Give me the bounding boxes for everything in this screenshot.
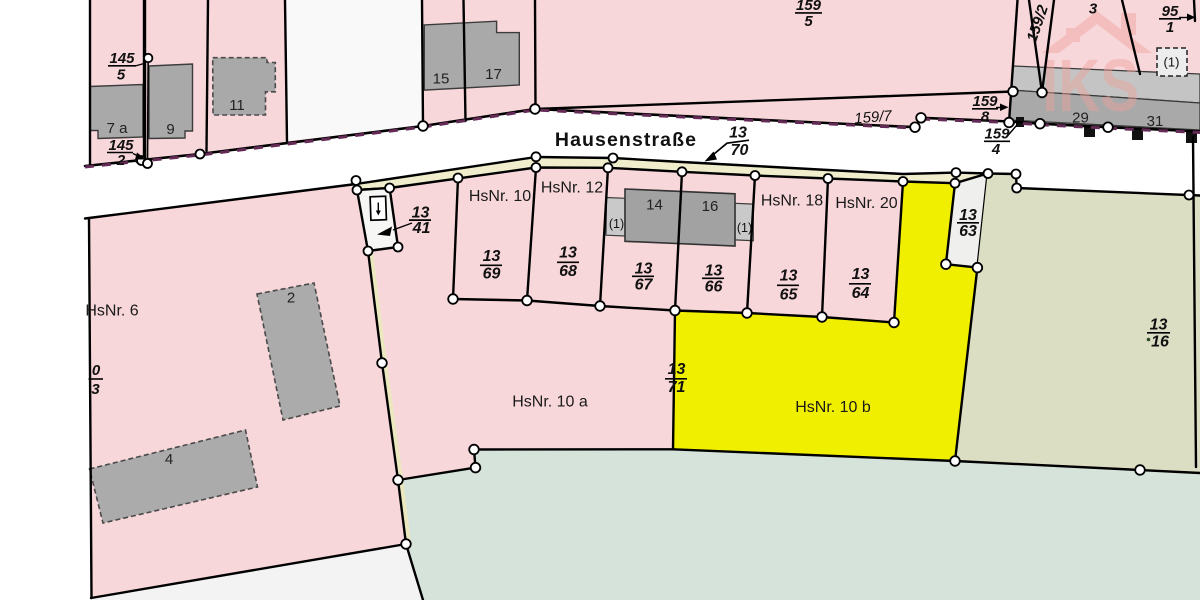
svg-text:13: 13 bbox=[780, 268, 798, 285]
svg-text:159: 159 bbox=[984, 126, 1010, 143]
svg-text:HsNr. 10 b: HsNr. 10 b bbox=[795, 399, 871, 416]
svg-text:8: 8 bbox=[981, 109, 990, 126]
svg-text:HsNr. 6: HsNr. 6 bbox=[85, 303, 138, 320]
svg-text:69: 69 bbox=[483, 266, 501, 283]
svg-text:65: 65 bbox=[780, 287, 799, 304]
svg-text:14: 14 bbox=[646, 197, 663, 214]
svg-text:13: 13 bbox=[559, 245, 577, 262]
svg-text:HsNr. 10 a: HsNr. 10 a bbox=[512, 394, 588, 411]
svg-text:66: 66 bbox=[705, 279, 723, 296]
svg-text:1: 1 bbox=[1166, 19, 1174, 36]
svg-text:HsNr. 20: HsNr. 20 bbox=[835, 195, 897, 212]
svg-text:159: 159 bbox=[972, 93, 998, 110]
svg-text:2: 2 bbox=[287, 290, 295, 307]
svg-text:5: 5 bbox=[804, 13, 813, 30]
svg-text:64: 64 bbox=[852, 285, 870, 302]
svg-text:13: 13 bbox=[729, 125, 747, 142]
svg-text:3: 3 bbox=[1089, 1, 1098, 18]
svg-text:16: 16 bbox=[702, 198, 719, 215]
svg-text:31: 31 bbox=[1147, 113, 1164, 130]
svg-text:2: 2 bbox=[116, 152, 126, 169]
svg-text:(1): (1) bbox=[609, 217, 624, 231]
svg-text:17: 17 bbox=[485, 66, 502, 83]
svg-text:159: 159 bbox=[796, 0, 822, 14]
svg-text:13: 13 bbox=[635, 261, 653, 278]
svg-text:13: 13 bbox=[705, 263, 723, 280]
svg-text:41: 41 bbox=[412, 220, 431, 237]
svg-text:13: 13 bbox=[412, 205, 430, 222]
svg-text:67: 67 bbox=[635, 277, 654, 294]
svg-text:15: 15 bbox=[433, 71, 450, 88]
svg-text:63: 63 bbox=[959, 223, 977, 240]
svg-text:95: 95 bbox=[1162, 3, 1179, 20]
svg-text:13: 13 bbox=[959, 207, 977, 224]
svg-text:71: 71 bbox=[668, 379, 686, 396]
svg-text:11: 11 bbox=[229, 97, 245, 114]
svg-text:13: 13 bbox=[483, 248, 501, 265]
svg-text:(1): (1) bbox=[737, 221, 752, 235]
svg-text:68: 68 bbox=[559, 263, 577, 280]
svg-text:HsNr. 18: HsNr. 18 bbox=[761, 193, 823, 210]
svg-text:HsNr. 12: HsNr. 12 bbox=[541, 180, 603, 197]
svg-text:IKS: IKS bbox=[1042, 44, 1139, 127]
svg-text:9: 9 bbox=[166, 121, 174, 138]
svg-text:16: 16 bbox=[1151, 334, 1169, 351]
svg-text:70: 70 bbox=[731, 142, 749, 159]
svg-text:0: 0 bbox=[92, 362, 101, 379]
svg-text:159/7: 159/7 bbox=[854, 108, 893, 128]
svg-text:13: 13 bbox=[852, 266, 870, 283]
svg-text:7 a: 7 a bbox=[107, 120, 129, 137]
svg-text:145: 145 bbox=[109, 50, 135, 67]
svg-text:Hausenstraße: Hausenstraße bbox=[555, 129, 697, 151]
svg-text:13: 13 bbox=[1150, 317, 1168, 334]
svg-text:HsNr. 10: HsNr. 10 bbox=[469, 188, 531, 205]
svg-text:4: 4 bbox=[991, 141, 1001, 158]
svg-text:(1): (1) bbox=[1164, 55, 1180, 70]
svg-text:13: 13 bbox=[668, 361, 686, 378]
svg-text:3: 3 bbox=[91, 381, 100, 398]
svg-text:4: 4 bbox=[165, 451, 173, 468]
svg-text:29: 29 bbox=[1072, 110, 1089, 127]
svg-text:5: 5 bbox=[117, 67, 126, 84]
